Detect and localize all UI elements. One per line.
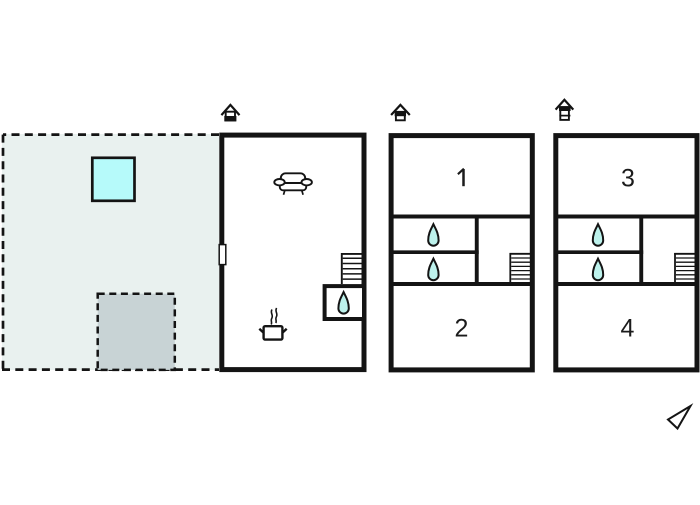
svg-text:3: 3: [621, 164, 635, 192]
svg-text:2: 2: [455, 314, 469, 342]
svg-text:4: 4: [621, 314, 635, 342]
